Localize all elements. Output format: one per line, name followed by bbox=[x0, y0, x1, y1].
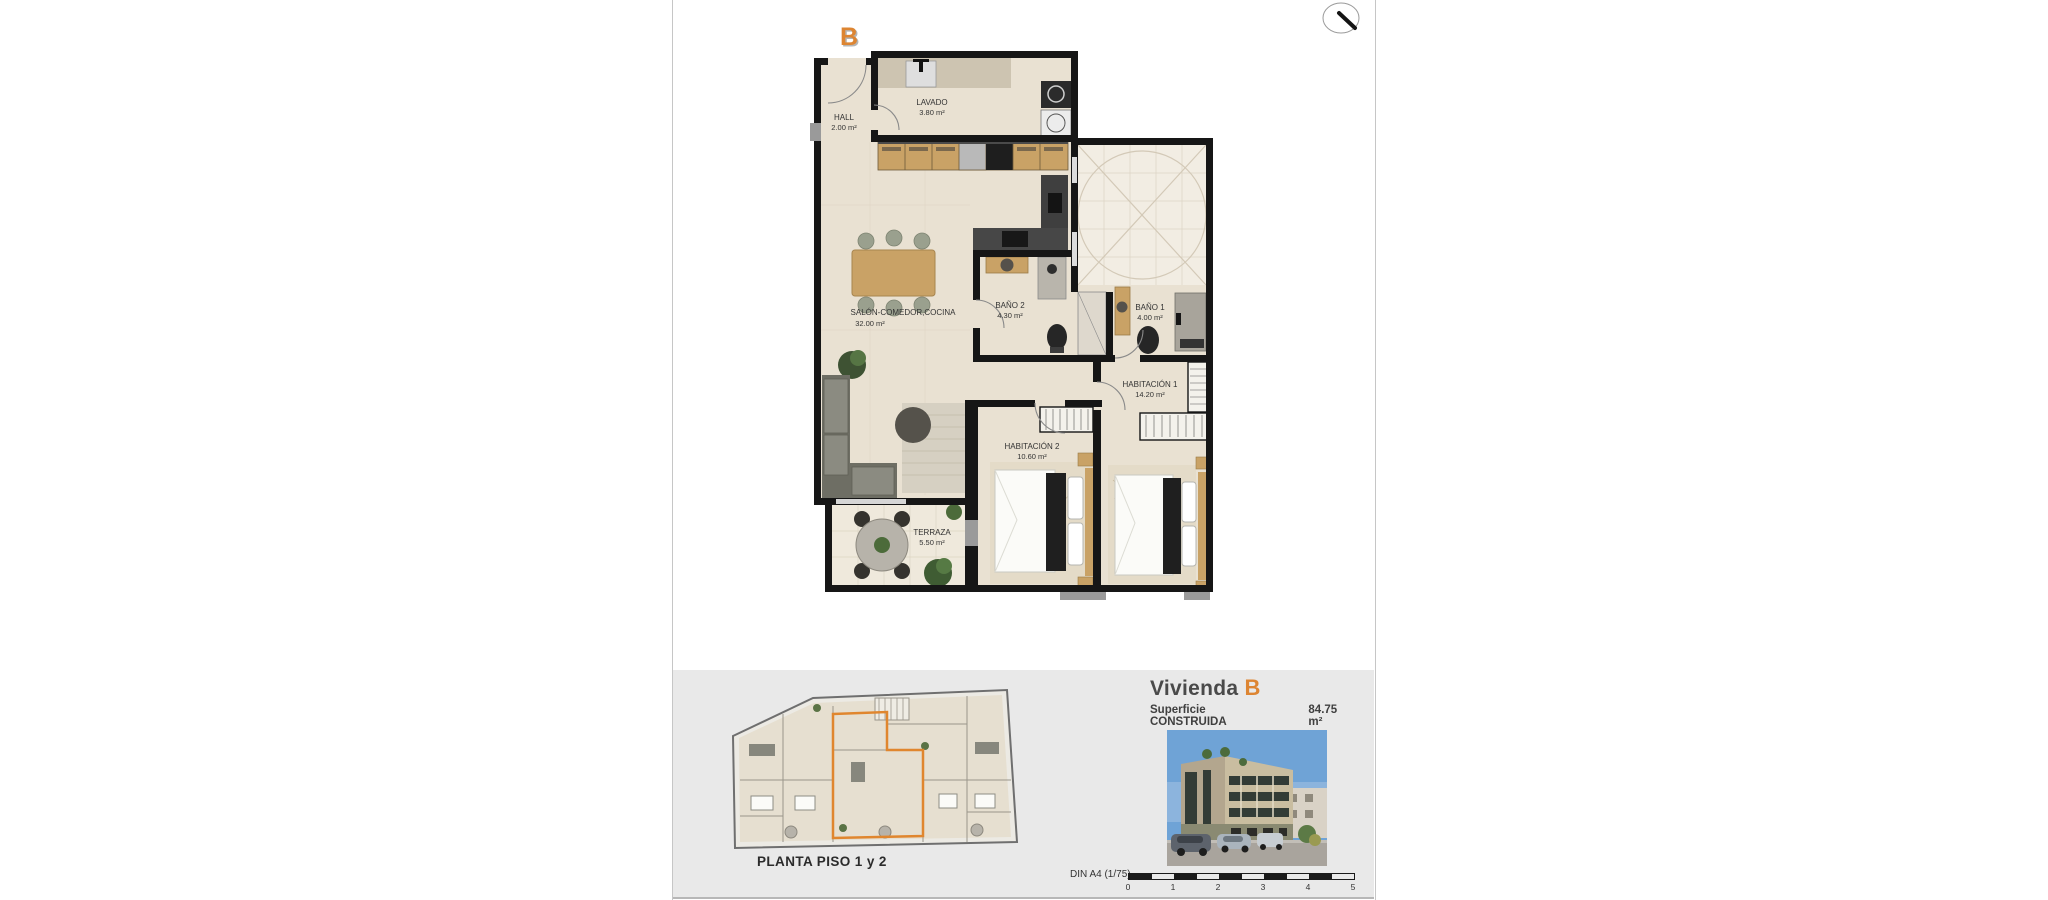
brochure-page: HALL 2.00 m² LAVADO 3.80 m² SALÓN-COMEDO… bbox=[0, 0, 2048, 900]
room-label-bedroom2: HABITACIÓN 2 bbox=[1005, 442, 1061, 451]
scale-bar bbox=[1128, 873, 1355, 880]
kitchen-cabinets bbox=[878, 140, 1068, 170]
floor-plan: HALL 2.00 m² LAVADO 3.80 m² SALÓN-COMEDO… bbox=[810, 25, 1230, 600]
room-area-bath2: 4.30 m² bbox=[997, 311, 1023, 320]
surface-row: Superficie CONSTRUIDA 84.75 m² bbox=[1150, 704, 1350, 728]
room-label-bedroom1: HABITACIÓN 1 bbox=[1123, 380, 1179, 389]
scale-ticks: 0 1 2 3 4 5 bbox=[1128, 882, 1353, 894]
patio-court bbox=[1078, 145, 1206, 285]
surface-label: Superficie CONSTRUIDA bbox=[1150, 704, 1272, 728]
room-label-bath2: BAÑO 2 bbox=[995, 301, 1025, 310]
scale-tick: 4 bbox=[1306, 882, 1311, 892]
room-area-bedroom2: 10.60 m² bbox=[1017, 452, 1047, 461]
room-area-salon: 32.00 m² bbox=[855, 319, 885, 328]
dining-table bbox=[852, 230, 935, 316]
unit-title-prefix: Vivienda bbox=[1150, 677, 1238, 700]
building-photo bbox=[1167, 730, 1327, 866]
room-label-salon: SALÓN-COMEDOR,COCINA bbox=[851, 308, 957, 317]
floor-overview-plan bbox=[725, 684, 1025, 854]
unit-title: Vivienda B bbox=[1150, 675, 1261, 701]
room-area-lavado: 3.80 m² bbox=[919, 108, 945, 117]
surface-value: 84.75 m² bbox=[1308, 704, 1350, 728]
overview-title: PLANTA PISO 1 y 2 bbox=[757, 854, 887, 869]
scale-tick: 1 bbox=[1171, 882, 1176, 892]
room-label-bath1: BAÑO 1 bbox=[1135, 303, 1165, 312]
scale-tick: 0 bbox=[1126, 882, 1131, 892]
room-area-bedroom1: 14.20 m² bbox=[1135, 390, 1165, 399]
room-label-hall: HALL bbox=[834, 113, 855, 122]
scale-tick: 3 bbox=[1261, 882, 1266, 892]
room-area-bath1: 4.00 m² bbox=[1137, 313, 1163, 322]
scale-label: DIN A4 (1/75) bbox=[1070, 869, 1131, 880]
north-arrow-icon bbox=[1322, 2, 1362, 38]
room-area-terraza: 5.50 m² bbox=[919, 538, 945, 547]
unit-letter: B bbox=[840, 25, 858, 51]
room-area-hall: 2.00 m² bbox=[831, 123, 857, 132]
unit-title-letter: B bbox=[1245, 675, 1261, 700]
scale-tick: 2 bbox=[1216, 882, 1221, 892]
room-label-terraza: TERRAZA bbox=[913, 528, 951, 537]
scale-tick: 5 bbox=[1351, 882, 1356, 892]
room-label-lavado: LAVADO bbox=[916, 98, 947, 107]
